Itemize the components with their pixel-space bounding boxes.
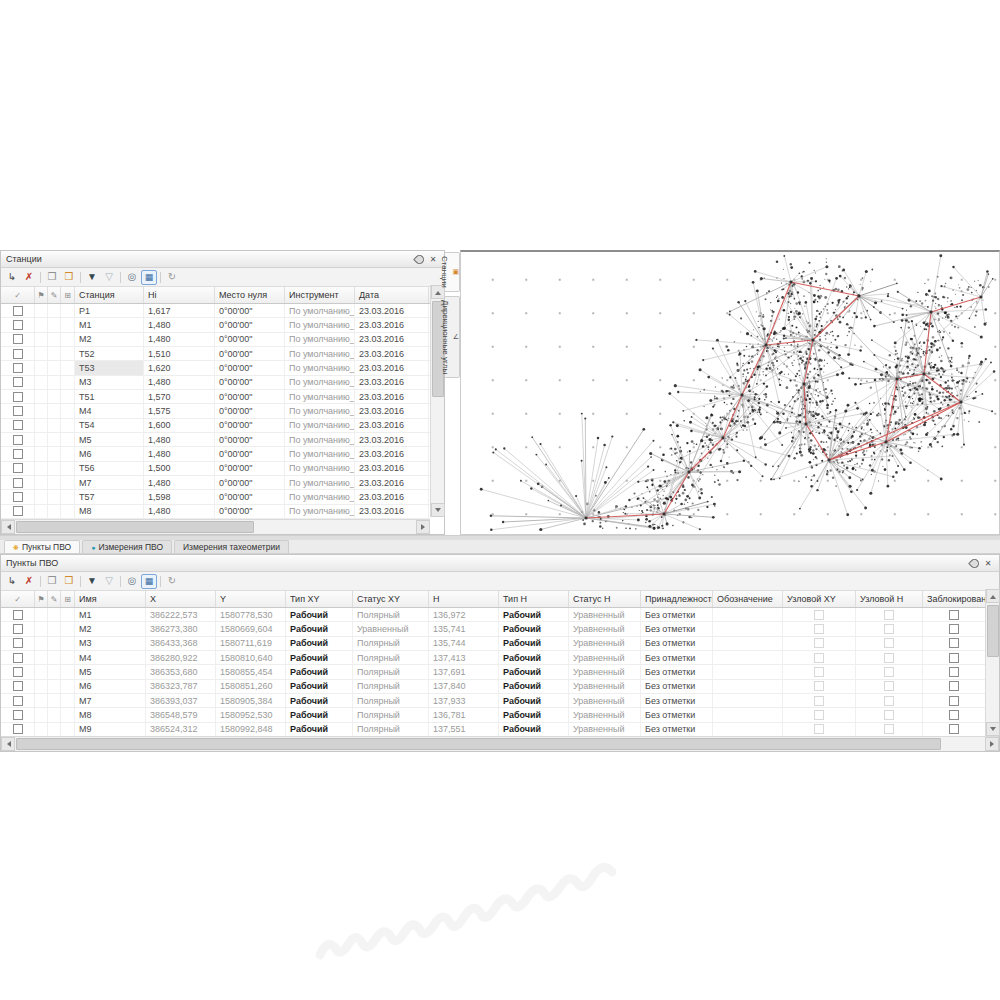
column-header-3[interactable]: Y xyxy=(216,591,286,607)
check-all-header[interactable]: ✓ xyxy=(1,591,35,607)
instrument-cell[interactable]: По умолчанию_1 xyxy=(285,419,355,432)
y-cell[interactable]: 1580851,260 xyxy=(216,680,286,693)
refresh-icon[interactable]: ↻ xyxy=(164,574,180,589)
table-row[interactable]: М61,4800°00'00"По умолчанию_123.03.2016 xyxy=(1,447,430,461)
station-name-cell[interactable]: Т52 xyxy=(75,347,144,360)
flag-icon[interactable]: ⚑ xyxy=(35,591,48,607)
point-name-cell[interactable]: М5 xyxy=(75,665,146,678)
point-name-cell[interactable]: М8 xyxy=(75,708,146,721)
table-row[interactable]: М41,5750°00'00"По умолчанию_123.03.2016 xyxy=(1,404,430,418)
y-cell[interactable]: 1580952,530 xyxy=(216,708,286,721)
table-row[interactable]: М11,4800°00'00"По умолчанию_123.03.2016 xyxy=(1,318,430,332)
status-h-cell[interactable]: Уравненный xyxy=(569,708,641,721)
checkbox-cell[interactable] xyxy=(1,651,35,664)
status-xy-cell[interactable]: Полярный xyxy=(353,651,429,664)
checkbox-cell[interactable] xyxy=(1,333,35,346)
instrument-cell[interactable]: По умолчанию_1 xyxy=(285,376,355,389)
row-checkbox[interactable] xyxy=(13,349,23,359)
date-cell[interactable]: 23.03.2016 xyxy=(355,390,429,403)
flag-cell[interactable] xyxy=(35,419,48,432)
row-checkbox[interactable] xyxy=(949,610,959,620)
membership-cell[interactable]: Без отметки xyxy=(641,608,713,621)
flag-cell[interactable] xyxy=(35,723,48,736)
zero-place-cell[interactable]: 0°00'00" xyxy=(215,433,285,446)
instrument-cell[interactable]: По умолчанию_1 xyxy=(285,318,355,331)
type-xy-cell[interactable]: Рабочий xyxy=(286,608,353,621)
row-checkbox[interactable] xyxy=(13,710,23,720)
row-checkbox[interactable] xyxy=(13,724,23,734)
hi-cell[interactable]: 1,500 xyxy=(144,462,215,475)
nodal-xy-cell[interactable] xyxy=(783,651,856,664)
check-all-header[interactable]: ✓ xyxy=(1,287,35,303)
blocked-cell[interactable] xyxy=(923,694,986,707)
station-name-cell[interactable]: М4 xyxy=(75,404,144,417)
grid-cell[interactable] xyxy=(61,419,75,432)
checkbox-cell[interactable] xyxy=(1,361,35,374)
checkbox-cell[interactable] xyxy=(1,490,35,503)
flag-cell[interactable] xyxy=(35,651,48,664)
checkbox-cell[interactable] xyxy=(1,462,35,475)
status-h-cell[interactable]: Уравненный xyxy=(569,694,641,707)
row-checkbox[interactable] xyxy=(949,696,959,706)
table-row[interactable]: М51,4800°00'00"По умолчанию_123.03.2016 xyxy=(1,433,430,447)
instrument-cell[interactable]: По умолчанию_1 xyxy=(285,462,355,475)
h-cell[interactable]: 137,933 xyxy=(429,694,499,707)
station-name-cell[interactable]: М8 xyxy=(75,505,144,518)
date-cell[interactable]: 23.03.2016 xyxy=(355,347,429,360)
type-xy-cell[interactable]: Рабочий xyxy=(286,637,353,650)
note-cell[interactable] xyxy=(48,347,61,360)
zero-place-cell[interactable]: 0°00'00" xyxy=(215,476,285,489)
row-checkbox[interactable] xyxy=(13,406,23,416)
station-name-cell[interactable]: Т57 xyxy=(75,490,144,503)
status-xy-cell[interactable]: Полярный xyxy=(353,665,429,678)
nodal-h-cell[interactable] xyxy=(856,708,923,721)
filter-on-icon[interactable]: ▼ xyxy=(84,270,100,285)
point-name-cell[interactable]: М2 xyxy=(75,622,146,635)
column-header-1[interactable]: Имя xyxy=(75,591,146,607)
blocked-cell[interactable] xyxy=(923,608,986,621)
close-icon[interactable]: ✕ xyxy=(427,254,439,265)
x-cell[interactable]: 386548,579 xyxy=(146,708,216,721)
note-cell[interactable] xyxy=(48,665,61,678)
checkbox-cell[interactable] xyxy=(1,347,35,360)
checkbox-cell[interactable] xyxy=(1,694,35,707)
y-cell[interactable]: 1580905,384 xyxy=(216,694,286,707)
survey-network-canvas[interactable] xyxy=(461,252,999,533)
y-cell[interactable]: 1580711,619 xyxy=(216,637,286,650)
row-checkbox[interactable] xyxy=(13,449,23,459)
table-row[interactable]: М6386323,7871580851,260РабочийПолярный13… xyxy=(1,680,987,694)
checkbox-cell[interactable] xyxy=(1,622,35,635)
nodal-xy-cell[interactable] xyxy=(783,708,856,721)
pencil-icon[interactable]: ✎ xyxy=(48,591,61,607)
type-h-cell[interactable]: Рабочий xyxy=(499,708,569,721)
hi-cell[interactable]: 1,480 xyxy=(144,476,215,489)
delete-icon[interactable]: ✗ xyxy=(21,574,37,589)
station-name-cell[interactable]: Т56 xyxy=(75,462,144,475)
table-row[interactable]: М5386353,6801580855,454РабочийПолярный13… xyxy=(1,665,987,679)
grid-cell[interactable] xyxy=(61,651,75,664)
hi-cell[interactable]: 1,480 xyxy=(144,447,215,460)
point-name-cell[interactable]: М1 xyxy=(75,608,146,621)
flag-cell[interactable] xyxy=(35,347,48,360)
hi-cell[interactable]: 1,570 xyxy=(144,390,215,403)
table-settings-icon[interactable]: ▦ xyxy=(141,574,157,589)
checkbox-cell[interactable] xyxy=(1,376,35,389)
hi-cell[interactable]: 1,480 xyxy=(144,376,215,389)
filter-on-icon[interactable]: ▼ xyxy=(84,574,100,589)
type-h-cell[interactable]: Рабочий xyxy=(499,723,569,736)
grid-cell[interactable] xyxy=(61,608,75,621)
column-header-7[interactable]: Тип H xyxy=(499,591,569,607)
note-cell[interactable] xyxy=(48,419,61,432)
y-cell[interactable]: 1580669,604 xyxy=(216,622,286,635)
stations-hscrollbar[interactable] xyxy=(1,519,430,534)
x-cell[interactable]: 386273,380 xyxy=(146,622,216,635)
type-h-cell[interactable]: Рабочий xyxy=(499,651,569,664)
zero-place-cell[interactable]: 0°00'00" xyxy=(215,347,285,360)
status-xy-cell[interactable]: Уравненный xyxy=(353,622,429,635)
column-header-4[interactable]: Инструмент xyxy=(285,287,355,303)
row-checkbox[interactable] xyxy=(13,610,23,620)
flag-cell[interactable] xyxy=(35,447,48,460)
nodal-xy-cell[interactable] xyxy=(783,723,856,736)
flag-cell[interactable] xyxy=(35,694,48,707)
nodal-xy-cell[interactable] xyxy=(783,680,856,693)
flag-cell[interactable] xyxy=(35,433,48,446)
zero-place-cell[interactable]: 0°00'00" xyxy=(215,447,285,460)
designation-cell[interactable] xyxy=(713,665,783,678)
row-checkbox[interactable] xyxy=(13,478,23,488)
instrument-cell[interactable]: По умолчанию_1 xyxy=(285,447,355,460)
membership-cell[interactable]: Без отметки xyxy=(641,651,713,664)
points-vscrollbar[interactable] xyxy=(985,589,999,736)
table-row[interactable]: М7386393,0371580905,384РабочийПолярный13… xyxy=(1,694,987,708)
nodal-xy-cell[interactable] xyxy=(783,608,856,621)
blocked-cell[interactable] xyxy=(923,637,986,650)
flag-cell[interactable] xyxy=(35,708,48,721)
row-checkbox[interactable] xyxy=(13,334,23,344)
note-cell[interactable] xyxy=(48,651,61,664)
row-checkbox[interactable] xyxy=(13,306,23,316)
points-hscrollbar[interactable] xyxy=(1,736,999,751)
type-xy-cell[interactable]: Рабочий xyxy=(286,694,353,707)
status-xy-cell[interactable]: Полярный xyxy=(353,608,429,621)
note-cell[interactable] xyxy=(48,505,61,518)
filter-off-icon[interactable]: ▽ xyxy=(101,270,117,285)
table-row[interactable]: М1386222,5731580778,530РабочийПолярный13… xyxy=(1,608,987,622)
row-checkbox[interactable] xyxy=(949,710,959,720)
membership-cell[interactable]: Без отметки xyxy=(641,637,713,650)
nodal-xy-cell[interactable] xyxy=(783,622,856,635)
designation-cell[interactable] xyxy=(713,608,783,621)
flag-cell[interactable] xyxy=(35,390,48,403)
flag-icon[interactable]: ⚑ xyxy=(35,287,48,303)
h-cell[interactable]: 136,781 xyxy=(429,708,499,721)
grid-cell[interactable] xyxy=(61,622,75,635)
station-name-cell[interactable]: М7 xyxy=(75,476,144,489)
nodal-h-cell[interactable] xyxy=(856,723,923,736)
note-cell[interactable] xyxy=(48,608,61,621)
filter-off-icon[interactable]: ▽ xyxy=(101,574,117,589)
nodal-h-cell[interactable] xyxy=(856,665,923,678)
row-checkbox[interactable] xyxy=(13,696,23,706)
note-cell[interactable] xyxy=(48,433,61,446)
grid-cell[interactable] xyxy=(61,318,75,331)
instrument-cell[interactable]: По умолчанию_1 xyxy=(285,404,355,417)
column-header-11[interactable]: Узловой XY xyxy=(783,591,856,607)
nodal-xy-cell[interactable] xyxy=(783,694,856,707)
row-checkbox[interactable] xyxy=(13,420,23,430)
add-node-icon[interactable]: ↳ xyxy=(4,270,20,285)
flag-cell[interactable] xyxy=(35,637,48,650)
hi-cell[interactable]: 1,600 xyxy=(144,419,215,432)
zero-place-cell[interactable]: 0°00'00" xyxy=(215,376,285,389)
status-h-cell[interactable]: Уравненный xyxy=(569,665,641,678)
table-row[interactable]: Т531,6200°00'00"По умолчанию_123.03.2016 xyxy=(1,361,430,375)
date-cell[interactable]: 23.03.2016 xyxy=(355,333,429,346)
hi-cell[interactable]: 1,480 xyxy=(144,333,215,346)
note-cell[interactable] xyxy=(48,694,61,707)
checkbox-cell[interactable] xyxy=(1,637,35,650)
nodal-h-cell[interactable] xyxy=(856,637,923,650)
designation-cell[interactable] xyxy=(713,651,783,664)
column-header-9[interactable]: Принадлежность xyxy=(641,591,713,607)
table-row[interactable]: М8386548,5791580952,530РабочийПолярный13… xyxy=(1,708,987,722)
grid-cell[interactable] xyxy=(61,476,75,489)
search-icon[interactable]: ◎ xyxy=(124,270,140,285)
h-cell[interactable]: 137,551 xyxy=(429,723,499,736)
h-cell[interactable]: 136,972 xyxy=(429,608,499,621)
paste-icon[interactable]: ❒ xyxy=(61,270,77,285)
checkbox-cell[interactable] xyxy=(1,608,35,621)
date-cell[interactable]: 23.03.2016 xyxy=(355,447,429,460)
note-cell[interactable] xyxy=(48,708,61,721)
designation-cell[interactable] xyxy=(713,622,783,635)
instrument-cell[interactable]: По умолчанию_1 xyxy=(285,490,355,503)
checkbox-cell[interactable] xyxy=(1,476,35,489)
row-checkbox[interactable] xyxy=(949,624,959,634)
grid-cell[interactable] xyxy=(61,708,75,721)
date-cell[interactable]: 23.03.2016 xyxy=(355,404,429,417)
hi-cell[interactable]: 1,480 xyxy=(144,318,215,331)
hi-cell[interactable]: 1,617 xyxy=(144,304,215,317)
status-h-cell[interactable]: Уравненный xyxy=(569,723,641,736)
membership-cell[interactable]: Без отметки xyxy=(641,708,713,721)
status-xy-cell[interactable]: Полярный xyxy=(353,723,429,736)
tab-1[interactable]: ❋Пункты ПВО xyxy=(4,540,80,553)
instrument-cell[interactable]: По умолчанию_1 xyxy=(285,347,355,360)
h-cell[interactable]: 135,741 xyxy=(429,622,499,635)
designation-cell[interactable] xyxy=(713,680,783,693)
instrument-cell[interactable]: По умолчанию_1 xyxy=(285,304,355,317)
row-checkbox[interactable] xyxy=(13,638,23,648)
x-cell[interactable]: 386280,922 xyxy=(146,651,216,664)
flag-cell[interactable] xyxy=(35,665,48,678)
table-row[interactable]: М4386280,9221580810,640РабочийПолярный13… xyxy=(1,651,987,665)
status-h-cell[interactable]: Уравненный xyxy=(569,680,641,693)
x-cell[interactable]: 386353,680 xyxy=(146,665,216,678)
checkbox-cell[interactable] xyxy=(1,304,35,317)
side-tab-2[interactable]: ∠Дирекционные углы xyxy=(445,296,460,378)
status-xy-cell[interactable]: Полярный xyxy=(353,694,429,707)
hi-cell[interactable]: 1,620 xyxy=(144,361,215,374)
grid-cell[interactable] xyxy=(61,390,75,403)
checkbox-cell[interactable] xyxy=(1,419,35,432)
note-cell[interactable] xyxy=(48,622,61,635)
table-row[interactable]: Т511,5700°00'00"По умолчанию_123.03.2016 xyxy=(1,390,430,404)
column-header-1[interactable]: Станция xyxy=(75,287,144,303)
grid-icon[interactable]: ⊞ xyxy=(61,591,75,607)
table-row[interactable]: М81,4800°00'00"По умолчанию_123.03.2016 xyxy=(1,505,430,519)
type-xy-cell[interactable]: Рабочий xyxy=(286,622,353,635)
checkbox-cell[interactable] xyxy=(1,447,35,460)
row-checkbox[interactable] xyxy=(949,667,959,677)
delete-icon[interactable]: ✗ xyxy=(21,270,37,285)
checkbox-cell[interactable] xyxy=(1,390,35,403)
note-cell[interactable] xyxy=(48,304,61,317)
instrument-cell[interactable]: По умолчанию_1 xyxy=(285,476,355,489)
column-header-8[interactable]: Статус H xyxy=(569,591,641,607)
row-checkbox[interactable] xyxy=(949,653,959,663)
note-cell[interactable] xyxy=(48,447,61,460)
checkbox-cell[interactable] xyxy=(1,433,35,446)
date-cell[interactable]: 23.03.2016 xyxy=(355,376,429,389)
hi-cell[interactable]: 1,598 xyxy=(144,490,215,503)
zero-place-cell[interactable]: 0°00'00" xyxy=(215,404,285,417)
date-cell[interactable]: 23.03.2016 xyxy=(355,462,429,475)
designation-cell[interactable] xyxy=(713,637,783,650)
grid-cell[interactable] xyxy=(61,505,75,518)
table-row[interactable]: М21,4800°00'00"По умолчанию_123.03.2016 xyxy=(1,333,430,347)
row-checkbox[interactable] xyxy=(13,435,23,445)
date-cell[interactable]: 23.03.2016 xyxy=(355,490,429,503)
add-node-icon[interactable]: ↳ xyxy=(4,574,20,589)
note-cell[interactable] xyxy=(48,462,61,475)
flag-cell[interactable] xyxy=(35,376,48,389)
zero-place-cell[interactable]: 0°00'00" xyxy=(215,419,285,432)
flag-cell[interactable] xyxy=(35,490,48,503)
nodal-xy-cell[interactable] xyxy=(783,637,856,650)
date-cell[interactable]: 23.03.2016 xyxy=(355,304,429,317)
instrument-cell[interactable]: По умолчанию_1 xyxy=(285,433,355,446)
status-xy-cell[interactable]: Полярный xyxy=(353,708,429,721)
y-cell[interactable]: 1580855,454 xyxy=(216,665,286,678)
x-cell[interactable]: 386433,368 xyxy=(146,637,216,650)
type-h-cell[interactable]: Рабочий xyxy=(499,622,569,635)
hi-cell[interactable]: 1,480 xyxy=(144,505,215,518)
flag-cell[interactable] xyxy=(35,304,48,317)
paste-icon[interactable]: ❒ xyxy=(61,574,77,589)
flag-cell[interactable] xyxy=(35,318,48,331)
zero-place-cell[interactable]: 0°00'00" xyxy=(215,490,285,503)
instrument-cell[interactable]: По умолчанию_1 xyxy=(285,361,355,374)
checkbox-cell[interactable] xyxy=(1,318,35,331)
note-cell[interactable] xyxy=(48,637,61,650)
zero-place-cell[interactable]: 0°00'00" xyxy=(215,390,285,403)
zero-place-cell[interactable]: 0°00'00" xyxy=(215,333,285,346)
station-name-cell[interactable]: М1 xyxy=(75,318,144,331)
pencil-icon[interactable]: ✎ xyxy=(48,287,61,303)
type-xy-cell[interactable]: Рабочий xyxy=(286,723,353,736)
flag-cell[interactable] xyxy=(35,462,48,475)
checkbox-cell[interactable] xyxy=(1,708,35,721)
checkbox-cell[interactable] xyxy=(1,505,35,518)
station-name-cell[interactable]: P1 xyxy=(75,304,144,317)
row-checkbox[interactable] xyxy=(13,624,23,634)
type-h-cell[interactable]: Рабочий xyxy=(499,608,569,621)
grid-cell[interactable] xyxy=(61,680,75,693)
tab-2[interactable]: ●Измерения ПВО xyxy=(82,540,172,553)
nodal-h-cell[interactable] xyxy=(856,680,923,693)
grid-cell[interactable] xyxy=(61,347,75,360)
zero-place-cell[interactable]: 0°00'00" xyxy=(215,361,285,374)
pin-icon[interactable] xyxy=(968,558,980,569)
date-cell[interactable]: 23.03.2016 xyxy=(355,433,429,446)
h-cell[interactable]: 137,413 xyxy=(429,651,499,664)
row-checkbox[interactable] xyxy=(13,492,23,502)
type-h-cell[interactable]: Рабочий xyxy=(499,637,569,650)
table-row[interactable]: Т541,6000°00'00"По умолчанию_123.03.2016 xyxy=(1,419,430,433)
h-cell[interactable]: 137,840 xyxy=(429,680,499,693)
grid-cell[interactable] xyxy=(61,304,75,317)
flag-cell[interactable] xyxy=(35,680,48,693)
column-header-3[interactable]: Место нуля xyxy=(215,287,285,303)
h-cell[interactable]: 135,744 xyxy=(429,637,499,650)
row-checkbox[interactable] xyxy=(949,638,959,648)
type-xy-cell[interactable]: Рабочий xyxy=(286,708,353,721)
copy-icon[interactable]: ❐ xyxy=(44,574,60,589)
grid-cell[interactable] xyxy=(61,333,75,346)
nodal-h-cell[interactable] xyxy=(856,608,923,621)
table-row[interactable]: М31,4800°00'00"По умолчанию_123.03.2016 xyxy=(1,376,430,390)
blocked-cell[interactable] xyxy=(923,665,986,678)
table-settings-icon[interactable]: ▦ xyxy=(141,270,157,285)
membership-cell[interactable]: Без отметки xyxy=(641,723,713,736)
station-name-cell[interactable]: Т51 xyxy=(75,390,144,403)
refresh-icon[interactable]: ↻ xyxy=(164,270,180,285)
note-cell[interactable] xyxy=(48,333,61,346)
grid-cell[interactable] xyxy=(61,361,75,374)
date-cell[interactable]: 23.03.2016 xyxy=(355,476,429,489)
y-cell[interactable]: 1580810,640 xyxy=(216,651,286,664)
station-name-cell[interactable]: Т54 xyxy=(75,419,144,432)
status-h-cell[interactable]: Уравненный xyxy=(569,651,641,664)
note-cell[interactable] xyxy=(48,390,61,403)
grid-cell[interactable] xyxy=(61,447,75,460)
h-cell[interactable]: 137,691 xyxy=(429,665,499,678)
note-cell[interactable] xyxy=(48,376,61,389)
column-header-13[interactable]: Заблокирован xyxy=(923,591,986,607)
membership-cell[interactable]: Без отметки xyxy=(641,665,713,678)
row-checkbox[interactable] xyxy=(13,653,23,663)
table-row[interactable]: М2386273,3801580669,604РабочийУравненный… xyxy=(1,622,987,636)
x-cell[interactable]: 386524,312 xyxy=(146,723,216,736)
column-header-10[interactable]: Обозначение xyxy=(713,591,783,607)
table-row[interactable]: М71,4800°00'00"По умолчанию_123.03.2016 xyxy=(1,476,430,490)
row-checkbox[interactable] xyxy=(13,392,23,402)
x-cell[interactable]: 386323,787 xyxy=(146,680,216,693)
station-name-cell[interactable]: Т53 xyxy=(75,361,144,374)
row-checkbox[interactable] xyxy=(13,681,23,691)
blocked-cell[interactable] xyxy=(923,622,986,635)
row-checkbox[interactable] xyxy=(13,377,23,387)
flag-cell[interactable] xyxy=(35,333,48,346)
zero-place-cell[interactable]: 0°00'00" xyxy=(215,505,285,518)
pin-icon[interactable] xyxy=(413,254,425,265)
grid-cell[interactable] xyxy=(61,694,75,707)
